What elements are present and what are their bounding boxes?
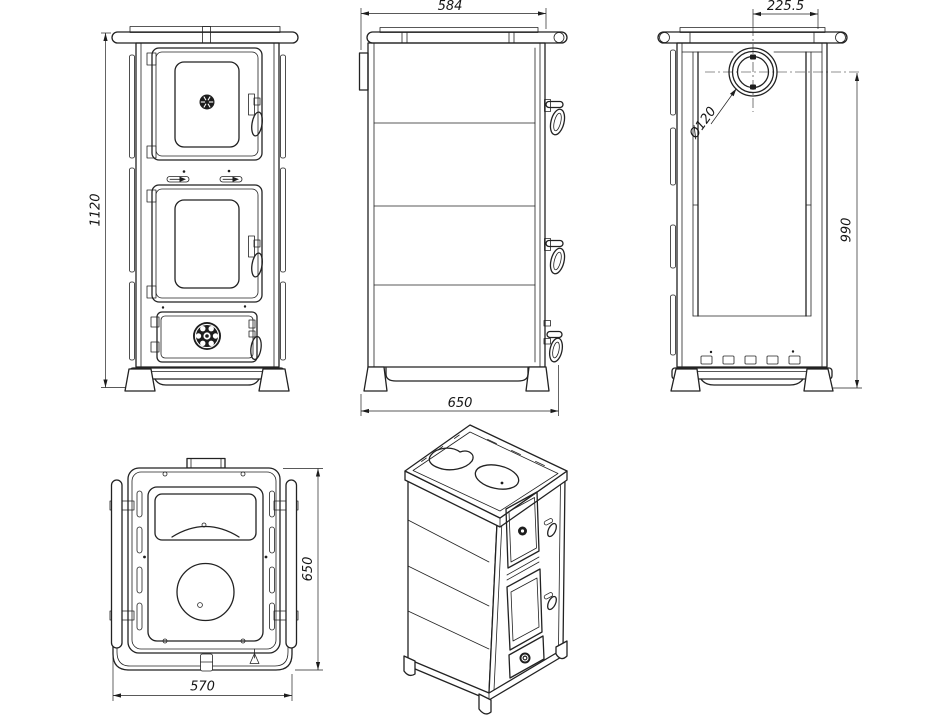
lower-door: [147, 185, 264, 302]
ash-door-handle: [249, 320, 263, 360]
base-side: [364, 367, 549, 391]
dim-label-570: 570: [190, 680, 215, 695]
stove-body-back: [677, 43, 827, 367]
front-view: 1120: [89, 27, 299, 392]
flue-shield-tab: [187, 459, 225, 469]
air-slider-controls: [167, 170, 242, 182]
stove-technical-drawing: 1120: [0, 0, 942, 717]
dim-label-584: 584: [438, 0, 463, 14]
dim-label-650-top: 650: [301, 557, 316, 582]
side-handles: [544, 100, 567, 363]
back-view: 225.5 Ø120 990: [658, 0, 862, 391]
top-view: 650 570: [110, 459, 323, 702]
upper-door: [147, 48, 264, 160]
base-back: [671, 368, 833, 391]
dim-label-1120: 1120: [89, 193, 104, 226]
dim-front-height: 1120: [89, 33, 127, 388]
rear-bracket: [360, 53, 369, 90]
rotary-air-vent: [193, 322, 221, 350]
isometric-view: [404, 425, 567, 714]
top-plate-front: [112, 32, 298, 43]
dim-flue-diameter: Ø120: [686, 89, 736, 143]
stove-body-side: [368, 43, 545, 367]
dim-label-225-5: 225.5: [767, 0, 804, 14]
top-plate-plan: [128, 468, 280, 653]
drawing-page: 1120: [0, 0, 942, 717]
top-plate-back: [658, 32, 847, 43]
rear-vent-slots: [701, 350, 800, 364]
side-view: 584 650: [360, 0, 568, 416]
ash-door: [151, 312, 263, 362]
door-emblem: [200, 95, 215, 110]
dim-label-990: 990: [840, 218, 855, 243]
dim-back-height: 990: [833, 73, 862, 388]
base-front: [125, 368, 289, 391]
dim-label-flue-diameter: Ø120: [686, 104, 719, 142]
top-plate-side: [367, 32, 567, 43]
dim-label-650-side: 650: [448, 396, 473, 411]
dim-flue-offset: 225.5: [753, 0, 818, 29]
